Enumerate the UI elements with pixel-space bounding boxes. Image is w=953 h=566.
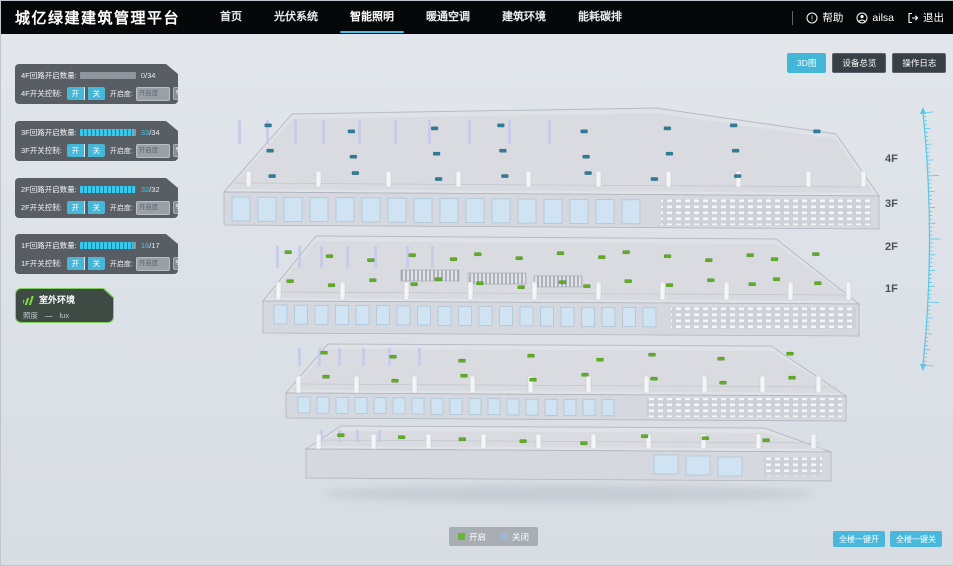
light-marker-2f[interactable] [323,375,330,378]
help-icon: ! [806,12,818,24]
light-marker-4f[interactable] [269,174,276,177]
floor-1f-floor [312,431,825,449]
pillar [816,376,821,393]
light-marker-3f[interactable] [435,278,442,281]
floor-4f-window [310,198,328,222]
interior-wall [320,246,323,268]
legend-label-off: 关闭 [512,531,529,543]
legend-swatch-on [458,533,465,540]
pillar [701,434,706,449]
pillar [536,434,541,449]
stair-opening [534,276,582,287]
floor-2f-window [317,397,329,413]
percent-confirm-button[interactable]: % [173,87,178,100]
header-divider [792,11,793,25]
floor-zoom-scale[interactable] [903,105,947,373]
light-marker-4f[interactable] [730,124,737,127]
floor-4f-window [466,199,484,223]
floor-3f-window [623,308,636,327]
light-marker-4f[interactable] [501,174,508,177]
interior-wall [346,246,349,268]
circuit-progress-bar [80,242,136,249]
outdoor-env-title: 室外环境 [39,293,75,306]
floor-4f-window [544,199,562,223]
floor-3f-window [418,306,431,325]
pillar [470,376,475,393]
interior-wall [298,246,301,268]
openness-input[interactable] [136,201,170,215]
pillar [724,282,729,300]
floor-4f-group [224,108,879,229]
light-marker-3f[interactable] [369,279,376,282]
outdoor-env-title-row: 室外环境 [23,293,106,306]
light-marker-2f[interactable] [530,378,537,381]
nav-item-building-env[interactable]: 建筑环境 [498,1,550,34]
switch-off-button[interactable]: 关 [88,201,105,214]
pillar [596,282,601,300]
all-off-button[interactable]: 全楼一键关 [890,531,942,547]
floor-4f-window [232,197,250,221]
floor-3f-window [295,305,308,324]
app-root: 城亿绿建建筑管理平台 首页光伏系统智能照明暖通空调建筑环境能耗碳排 ! 帮助 a… [0,0,953,566]
interior-wall [374,246,377,268]
light-marker-4f[interactable] [265,124,272,127]
floor-control-panel-2f: 2F回路开启数量: 32/32 2F开关控制: 开 关 开启度: % [15,178,178,218]
light-marker-3f[interactable] [411,283,418,286]
floor-2f-window [336,397,348,413]
circuit-count-label: 3F回路开启数量: [21,127,77,138]
floor-3f-window [602,308,615,327]
interior-wall [362,348,365,366]
pillar [371,434,376,449]
light-marker-3f[interactable] [812,253,819,256]
percent-confirm-button[interactable]: % [173,201,178,214]
ruler-tick [925,349,931,350]
floor-3f-window [643,308,656,327]
pillar [386,171,391,187]
floor-4f-window [388,198,406,222]
light-marker-1f[interactable] [337,434,344,437]
device-overview-button[interactable]: 设备总览 [832,53,886,73]
pillar [526,171,531,187]
floor-3f-window [377,306,390,325]
light-marker-4f[interactable] [348,130,355,133]
light-marker-4f[interactable] [732,149,739,152]
floor-1f-window [686,456,710,475]
logout-button[interactable]: 退出 [907,10,944,25]
pillar [481,434,486,449]
light-marker-3f[interactable] [598,256,605,259]
illuminance-value: — [45,311,53,320]
light-marker-3f[interactable] [625,280,632,283]
light-marker-4f[interactable] [267,149,274,152]
interior-wall [406,246,409,268]
floor-3f-vent-pattern [671,307,856,329]
light-marker-4f[interactable] [499,149,506,152]
user-icon [856,12,868,24]
floor-3f-window [315,305,328,324]
floor-control-panel-3f: 3F回路开启数量: 33/34 3F开关控制: 开 关 开启度: % [15,121,178,161]
light-marker-3f[interactable] [749,283,756,286]
floor-3f-window [356,306,369,325]
floor-4f-window [440,199,458,223]
light-marker-2f[interactable] [718,357,725,360]
operation-log-button[interactable]: 操作日志 [892,53,946,73]
circuit-count-label: 2F回路开启数量: [21,184,77,195]
light-marker-4f[interactable] [435,177,442,180]
interior-wall [318,348,321,366]
floor-4f-window [414,198,432,222]
light-marker-3f[interactable] [623,251,630,254]
light-marker-3f[interactable] [518,286,525,289]
ruler-tick [928,175,939,176]
switch-on-button[interactable]: 开 [67,201,85,214]
pillar [276,282,281,300]
light-marker-3f[interactable] [747,254,754,257]
pillar [296,376,301,393]
nav-item-home[interactable]: 首页 [216,1,246,34]
light-marker-3f[interactable] [814,282,821,285]
env-bars-icon [23,295,35,305]
floor-2f-vent-pattern [646,398,842,417]
interior-wall [276,246,279,268]
floor-4f-window [336,198,354,222]
openness-label: 开启度: [110,259,133,269]
light-marker-3f[interactable] [287,280,294,283]
floor-3f-floor [269,241,853,301]
circuit-count-value: 0/34 [141,71,156,80]
switch-off-button[interactable]: 关 [88,144,105,157]
illuminance-label: 照度 [23,310,38,321]
light-marker-3f[interactable] [666,284,673,287]
floor-3f-window [479,307,492,326]
username-label: ailsa [872,12,894,24]
ruler-arrow-down [920,364,926,371]
floor-scale-label-1f[interactable]: 1F [885,283,898,295]
circuit-count-value: 32/32 [141,185,160,194]
light-marker-3f[interactable] [773,278,780,281]
interior-wall [358,120,361,144]
stair-opening [401,270,459,281]
floor-4f-window [570,199,588,223]
view-3d-button[interactable]: 3D图 [787,53,826,73]
user-menu[interactable]: ailsa [856,12,894,24]
floor-2f-window [488,399,500,415]
floor-2f-window [298,397,310,413]
light-marker-3f[interactable] [367,259,374,262]
light-marker-4f[interactable] [664,127,671,130]
switch-off-button[interactable]: 关 [88,257,105,270]
pillar [340,282,345,300]
light-marker-2f[interactable] [787,352,794,355]
light-marker-4f[interactable] [734,174,741,177]
pillar [596,171,601,187]
light-marker-4f[interactable] [585,171,592,174]
light-marker-3f[interactable] [516,257,523,260]
floor-2f-window [545,399,557,415]
logout-label: 退出 [923,10,944,25]
nav-item-energy-carbon[interactable]: 能耗碳排 [574,1,626,34]
ruler-arrow-up [920,107,926,114]
top-nav-bar: 城亿绿建建筑管理平台 首页光伏系统智能照明暖通空调建筑环境能耗碳排 ! 帮助 a… [1,1,953,34]
light-marker-4f[interactable] [581,130,588,133]
floor-3f-window [520,307,533,326]
circuit-progress-bar [80,129,136,136]
floor-control-panel-4f: 4F回路开启数量: 0/34 4F开关控制: 开 关 开启度: % [15,64,178,104]
legend-label-on: 开启 [469,531,486,543]
light-marker-3f[interactable] [450,258,457,261]
pillar [532,282,537,300]
light-marker-1f[interactable] [763,439,770,442]
pillar [660,282,665,300]
light-marker-3f[interactable] [409,254,416,257]
light-marker-4f[interactable] [583,155,590,158]
light-marker-4f[interactable] [666,152,673,155]
light-marker-2f[interactable] [459,359,466,362]
light-marker-2f[interactable] [651,377,658,380]
openness-label: 开启度: [110,146,133,156]
switch-on-button[interactable]: 开 [67,144,85,157]
floor-4f-vent-pattern [661,199,871,225]
light-marker-3f[interactable] [476,282,483,285]
interior-wall [322,120,325,144]
illuminance-row: 照度 — lux [23,310,106,321]
light-marker-2f[interactable] [649,353,656,356]
circuit-count-value: 33/34 [141,128,160,137]
light-marker-4f[interactable] [813,130,820,133]
pillar [666,171,671,187]
building-3d-view[interactable] [216,96,886,516]
illuminance-unit: lux [60,311,70,320]
pillar [644,376,649,393]
openness-input[interactable] [136,144,170,158]
pillar [246,171,251,187]
floor-1f-window [718,457,742,476]
light-marker-3f[interactable] [285,251,292,254]
light-marker-4f[interactable] [497,124,504,127]
percent-confirm-button[interactable]: % [173,144,178,157]
interior-wall [428,120,431,144]
floor-2f-window [355,398,367,414]
circuit-progress-fill [80,242,133,249]
help-button[interactable]: ! 帮助 [806,10,843,25]
circuit-count-value: 16/17 [141,241,160,250]
interior-wall [298,348,301,366]
floor-3f-window [438,306,451,325]
ruler-tick [925,128,931,129]
switch-control-label: 1F开关控制: [21,258,62,269]
light-state-legend: 开启关闭 [449,527,538,546]
light-marker-3f[interactable] [664,255,671,258]
light-marker-1f[interactable] [520,440,527,443]
building-ground-shadow [323,485,813,503]
circuit-progress-fill [80,186,136,193]
pillar [788,282,793,300]
floor-control-panel-1f: 1F回路开启数量: 16/17 1F开关控制: 开 关 开启度: % [15,234,178,274]
interior-wall [338,348,341,366]
pillar [316,171,321,187]
interior-wall [508,120,511,144]
pillar [404,282,409,300]
floor-3f-window [336,305,349,324]
light-marker-2f[interactable] [390,355,397,358]
switch-on-button[interactable]: 开 [67,87,85,100]
circuit-count-label: 1F回路开启数量: [21,240,77,251]
floor-4f-window [596,200,614,224]
light-marker-1f[interactable] [641,435,648,438]
switch-control-label: 3F开关控制: [21,145,62,156]
pillar [846,282,851,300]
light-marker-2f[interactable] [461,374,468,377]
light-marker-1f[interactable] [459,438,466,441]
floor-2f-window [602,400,614,416]
light-marker-3f[interactable] [771,258,778,261]
legend-item-on: 开启 [458,531,486,543]
pillar [736,171,741,187]
light-marker-2f[interactable] [321,351,328,354]
nav-item-pv-system[interactable]: 光伏系统 [270,1,322,34]
light-marker-4f[interactable] [431,127,438,130]
pillar [861,171,866,187]
interior-wall [548,120,551,144]
floor-4f-window [492,199,510,223]
floor-3f-window [397,306,410,325]
light-marker-2f[interactable] [582,373,589,376]
interior-wall [378,430,381,442]
floor-4f-window [284,197,302,221]
pillar [412,376,417,393]
light-marker-3f[interactable] [707,279,714,282]
light-marker-4f[interactable] [433,152,440,155]
pillar [316,434,321,449]
app-title: 城亿绿建建筑管理平台 [15,7,180,28]
floor-4f-window [518,199,536,223]
floor-3f-window [561,307,574,326]
openness-input[interactable] [136,257,170,271]
floor-4f-window [622,200,640,224]
light-marker-2f[interactable] [528,354,535,357]
light-marker-1f[interactable] [702,437,709,440]
outdoor-env-inner: 室外环境 照度 — lux [16,289,113,322]
view-buttons: 3D图设备总览操作日志 [787,53,946,73]
floor-3f-group [263,236,859,336]
pillar [586,376,591,393]
switch-control-label: 4F开关控制: [21,88,62,99]
openness-input[interactable] [136,87,170,101]
light-marker-3f[interactable] [583,285,590,288]
light-marker-4f[interactable] [350,155,357,158]
floor-2f-window [469,399,481,415]
switch-on-button[interactable]: 开 [67,257,85,270]
pillar [760,376,765,393]
floor-3f-window [582,307,595,326]
all-on-button[interactable]: 全楼一键开 [833,531,885,547]
outdoor-env-panel: 室外环境 照度 — lux [15,288,114,323]
light-marker-4f[interactable] [651,177,658,180]
pillar [354,376,359,393]
switch-control-label: 2F开关控制: [21,202,62,213]
floor-2f-window [564,399,576,415]
floor-2f-group [286,344,846,421]
circuit-progress-fill [80,129,134,136]
light-marker-2f[interactable] [789,376,796,379]
floor-3f-window [274,305,287,324]
interior-wall [294,120,297,144]
nav-item-smart-lighting[interactable]: 智能照明 [346,1,398,34]
floor-2f-window [583,400,595,416]
pillar [702,376,707,393]
interior-wall [431,246,434,268]
light-marker-2f[interactable] [392,379,399,382]
floor-2f-window [374,398,386,414]
pillar [591,434,596,449]
light-marker-3f[interactable] [559,281,566,284]
pillar [806,171,811,187]
bulk-buttons: 全楼一键开全楼一键关 [833,531,942,547]
logout-icon [907,12,919,24]
percent-confirm-button[interactable]: % [173,257,178,270]
legend-swatch-off [501,533,508,540]
pillar [756,434,761,449]
floor-2f-window [412,398,424,414]
light-marker-1f[interactable] [398,436,405,439]
circuit-progress-bar [80,72,136,79]
light-marker-1f[interactable] [580,442,587,445]
floor-1f-front-wall [306,449,831,481]
circuit-progress-bar [80,186,136,193]
light-marker-3f[interactable] [557,252,564,255]
floor-2f-window [393,398,405,414]
light-marker-3f[interactable] [474,253,481,256]
interior-wall [418,348,421,366]
floor-3f-window [500,307,513,326]
floor-2f-window [526,399,538,415]
floor-4f-window [362,198,380,222]
light-marker-2f[interactable] [720,381,727,384]
ruler-curve [923,113,930,365]
help-label: 帮助 [822,10,843,25]
header-right: ! 帮助 ailsa 退出 [792,1,944,34]
switch-off-button[interactable]: 关 [88,87,105,100]
light-marker-3f[interactable] [705,259,712,262]
floor-2f-window [431,398,443,414]
light-marker-2f[interactable] [597,358,604,361]
floor-scale-label-3f[interactable]: 3F [885,198,898,210]
main-nav: 首页光伏系统智能照明暖通空调建筑环境能耗碳排 [216,1,626,34]
pillar [811,434,816,449]
pillar [468,282,473,300]
floor-scale-label-2f[interactable]: 2F [885,241,898,253]
openness-label: 开启度: [110,203,133,213]
floor-2f-window [450,398,462,414]
floor-3f-window [459,306,472,325]
nav-item-hvac[interactable]: 暖通空调 [422,1,474,34]
svg-text:!: ! [811,13,813,22]
floor-scale-label-4f[interactable]: 4F [885,153,898,165]
interior-wall [468,120,471,144]
pillar [426,434,431,449]
light-marker-4f[interactable] [352,171,359,174]
floor-1f-window [654,455,678,474]
light-marker-3f[interactable] [328,284,335,287]
floor-2f-window [507,399,519,415]
openness-label: 开启度: [110,89,133,99]
interior-wall [356,430,359,442]
circuit-count-label: 4F回路开启数量: [21,70,77,81]
light-marker-3f[interactable] [326,255,333,258]
floor-4f-window [258,197,276,221]
ruler-tick [928,302,939,303]
